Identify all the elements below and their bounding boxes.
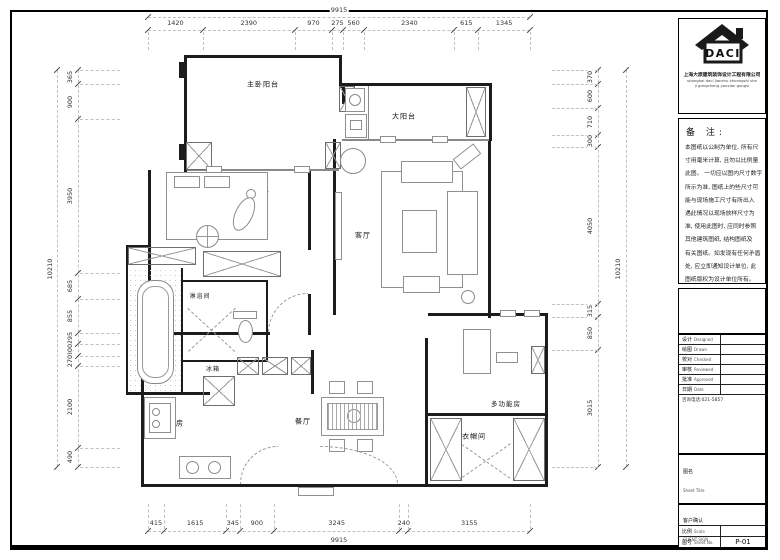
furniture (447, 191, 478, 275)
dim-label: 4050 (587, 216, 594, 235)
dim-label: 9915 (330, 7, 349, 14)
wall (308, 294, 311, 335)
symbol-cross-v (207, 225, 208, 248)
dim-line (343, 32, 344, 50)
floor-plan: 主卧阳台 主卧 大阳台 客厅 淋浴间 浴缸 冰箱 厨房 餐厅 多功能房 衣帽间 … (0, 0, 780, 560)
field-cn: 审核 (682, 366, 692, 373)
dim-label: 2100 (67, 398, 74, 417)
furniture (204, 176, 230, 188)
wall (489, 83, 492, 141)
room-label-big-balcony: 大阳台 (391, 114, 417, 121)
room-label-shower-room: 淋浴间 (188, 294, 211, 300)
note-line: 本图纸以公制为单位, 所有尺 (679, 142, 765, 155)
sheet-no-label-cn: 图号 (682, 539, 692, 546)
dim-label: 1615 (186, 520, 205, 527)
furniture (149, 403, 171, 433)
wall (181, 280, 268, 282)
dim-label: 900 (67, 94, 74, 108)
cabinet-hatch (291, 357, 311, 375)
cabinet-hatch (325, 142, 341, 169)
furniture-circle (186, 461, 199, 474)
furniture (357, 439, 373, 452)
note-line: 其他建筑图纸, 结构图纸及 (679, 234, 765, 247)
cabinet-hatch (237, 357, 259, 375)
dim-label: 600 (587, 89, 594, 103)
furniture (298, 487, 334, 496)
dim-label: 345 (226, 520, 240, 527)
furniture-circle (152, 420, 160, 428)
field-cn: 设计 (682, 336, 692, 343)
wall (311, 350, 314, 394)
sheet-title-label-cn: 图名 (683, 469, 693, 475)
furniture-circle (461, 290, 475, 304)
dim-label: 370 (587, 70, 594, 84)
field-en: Reviewed (694, 367, 713, 372)
cabinet-hatch (262, 357, 288, 375)
notes-box: 备 注: 本图纸以公制为单位, 所有尺 寸用毫米计算, 且勿以比例量 此图。 一… (678, 118, 766, 284)
furniture-circle (340, 148, 366, 174)
dim-line (80, 344, 120, 345)
note-line: 处, 应立即通知设计单位, 此 (679, 261, 765, 274)
wall (141, 484, 548, 487)
dim-label: 3155 (460, 520, 479, 527)
client-sign-box: 客户确认 CLIENT SIGN 比例Scale 图号Sheet No. P-0… (678, 504, 766, 548)
signature-table: 设计Designed 绘图Drawn 校对Checked 审核Reviewed … (678, 334, 766, 454)
field-cn: 批准 (682, 376, 692, 383)
furniture (463, 329, 491, 374)
wall (126, 392, 210, 395)
room-label-cloakroom: 衣帽间 (461, 434, 487, 441)
dim-label: 685 (67, 279, 74, 293)
dim-label: 1420 (166, 20, 185, 27)
scale-row: 比例Scale (679, 525, 765, 536)
cabinet-hatch (531, 346, 545, 374)
sheet-no-label-en: Sheet No. (694, 540, 713, 545)
wall (184, 55, 342, 58)
furniture (524, 310, 540, 317)
dim-line (203, 32, 204, 50)
dim-line (530, 32, 531, 50)
dim-line (598, 70, 599, 467)
dim-line (626, 70, 627, 467)
wall (179, 62, 187, 78)
dim-line (148, 32, 149, 50)
room-label-fridge: 冰箱 (205, 367, 221, 373)
wall (488, 139, 491, 318)
dim-label: 2390 (239, 20, 258, 27)
furniture (496, 352, 518, 363)
dim-label: 710 (587, 114, 594, 128)
dim-line (552, 84, 598, 85)
field-cn: 日期 (682, 386, 692, 393)
furniture-circle (152, 408, 160, 416)
dim-line (552, 467, 598, 468)
note-line: 图纸版权为设计单位所有。 (679, 274, 765, 287)
note-line: 能与现场施工尺寸有所出入 (679, 195, 765, 208)
furniture (294, 166, 310, 173)
door-arc-bedroom (268, 293, 308, 333)
note-line: 准, 使用此图时, 应同时参照 (679, 221, 765, 234)
note-line: 所示为准, 图纸上的些尺寸可 (679, 182, 765, 195)
field-en: Checked (694, 357, 711, 362)
dim-label: 3245 (327, 520, 346, 527)
daci-logo: DACI (679, 19, 765, 69)
note-line: 有关图纸。如发现有任何矛盾 (679, 248, 765, 261)
dim-label: 10210 (47, 257, 54, 280)
dim-line (57, 70, 58, 467)
notes-title: 备 注: (679, 119, 765, 142)
client-sign-label-cn: 客户确认 (683, 518, 703, 524)
furniture (357, 381, 373, 394)
dim-line (332, 32, 333, 50)
note-line: 寸用毫米计算, 且勿以比例量 (679, 155, 765, 168)
dim-tick (527, 14, 533, 20)
table-row-approved: 批准Approved (679, 375, 765, 385)
logo-text: DACI (705, 47, 741, 60)
dim-line (80, 467, 120, 468)
room-label-master-balcony: 主卧阳台 (246, 82, 280, 89)
wall (342, 83, 492, 86)
dim-label: 10210 (615, 257, 622, 280)
dim-label: 970 (306, 20, 320, 27)
note-line: 此图。 一切应以图内尺寸数字 (679, 168, 765, 181)
furniture (335, 192, 342, 260)
dim-label: 300 (587, 134, 594, 148)
company-name-cn: 上海大原建筑装饰设计工程有限公司 (681, 71, 764, 78)
spare-box (678, 288, 766, 334)
furniture (500, 310, 516, 317)
field-cn: 绘图 (682, 346, 692, 353)
logo-box: DACI 上海大原建筑装饰设计工程有限公司 shanghai daci jian… (678, 18, 766, 114)
thin-wall (368, 86, 369, 139)
dim-label: 315 (587, 303, 594, 317)
door-arc-entry (320, 446, 398, 484)
dim-line (80, 356, 120, 357)
dim-line (78, 70, 79, 467)
dim-line (164, 504, 165, 529)
dim-line (274, 504, 275, 529)
furniture-oval (238, 320, 253, 343)
dim-line (454, 32, 455, 50)
bathtub-inner (142, 286, 169, 378)
dim-label: 9915 (330, 537, 349, 544)
dim-label: 615 (459, 20, 473, 27)
table-row-date: 日期Date (679, 385, 765, 395)
furniture (350, 120, 362, 130)
scale-label-cn: 比例 (682, 528, 692, 535)
dim-line (478, 32, 479, 50)
dim-line (295, 32, 296, 50)
dim-label: 855 (67, 309, 74, 323)
scale-label-en: Scale (694, 529, 705, 534)
room-label-multi-function-room: 多功能房 (490, 401, 522, 408)
cabinet-hatch (128, 247, 196, 265)
table-row-designed: 设计Designed (679, 335, 765, 345)
furniture (402, 210, 437, 253)
field-en: Designed (694, 337, 713, 342)
floorplan-sheet: { "sheet": { "drawing_title": "原始结构图", "… (0, 0, 780, 560)
dim-line (364, 32, 365, 50)
dim-line (552, 350, 598, 351)
thin-wall (342, 139, 489, 141)
sheet-no-value: P-01 (721, 538, 765, 546)
dim-line (530, 504, 531, 529)
field-cn: 校对 (682, 356, 692, 363)
dim-label: 365 (67, 70, 74, 84)
dim-label: 275 (330, 20, 344, 27)
dim-label: 270 (67, 354, 74, 368)
wall (425, 413, 548, 416)
door-arc-kitchen (240, 446, 278, 484)
room-label-dining-room: 餐厅 (294, 419, 312, 426)
dim-line (80, 448, 120, 449)
note-line: 遇此情况以现场放样尺寸为 (679, 208, 765, 221)
furniture (206, 166, 222, 173)
furniture (233, 311, 257, 319)
field-en: Date (694, 387, 704, 392)
table-runner (327, 403, 378, 430)
dim-line (148, 30, 530, 31)
dim-tick (54, 464, 60, 470)
wall (181, 268, 183, 394)
furniture (380, 136, 396, 143)
dim-line (80, 70, 120, 71)
cabinet-hatch (513, 418, 545, 481)
furniture (174, 176, 200, 188)
dim-label: 240 (397, 520, 411, 527)
wall (545, 313, 548, 487)
field-en: Drawn (694, 347, 707, 352)
dim-label: 2340 (400, 20, 419, 27)
table-row-checked: 校对Checked (679, 355, 765, 365)
dim-label: 3950 (67, 187, 74, 206)
dim-line (80, 366, 120, 367)
wall (308, 170, 311, 250)
field-en: Approved (694, 377, 713, 382)
table-row-drawn: 绘图Drawn (679, 345, 765, 355)
dim-line (80, 84, 120, 85)
furniture-circle (349, 94, 361, 106)
dim-line (80, 299, 120, 300)
cabinet-hatch (203, 376, 235, 406)
cabinet-hatch (430, 418, 462, 481)
sheet-title-box: 图名 Sheet Title 原始结构图 (678, 454, 766, 504)
dim-label: 850 (587, 326, 594, 340)
dim-label: 490 (67, 450, 74, 464)
cabinet-hatch (466, 87, 486, 137)
dim-label: 3015 (587, 399, 594, 418)
furniture-circle (208, 461, 221, 474)
furniture (432, 136, 448, 143)
furniture (329, 381, 345, 394)
dim-label: 1345 (495, 20, 514, 27)
dim-line (80, 333, 120, 334)
dim-label: 415 (149, 520, 163, 527)
room-label-living-room: 客厅 (354, 233, 372, 240)
armchair (453, 143, 481, 169)
dim-tick (623, 464, 629, 470)
dim-line (148, 531, 530, 532)
furniture (401, 161, 453, 183)
cabinet-hatch (203, 251, 281, 277)
furniture (403, 276, 440, 293)
dim-line (80, 119, 120, 120)
phone-note: 咨询电话:021-5857 (679, 395, 765, 405)
dim-label: 560 (346, 20, 360, 27)
sheet-title-label-en: Sheet Title (683, 488, 704, 493)
dim-label: 900 (250, 520, 264, 527)
dim-line (80, 273, 120, 274)
sheet-no-row: 图号Sheet No. P-01 (679, 536, 765, 547)
wall (266, 280, 268, 362)
company-name-en-2: ji gongcheng youxian gongsi (679, 83, 765, 88)
table-row-reviewed: 审核Reviewed (679, 365, 765, 375)
dim-line (552, 108, 598, 109)
